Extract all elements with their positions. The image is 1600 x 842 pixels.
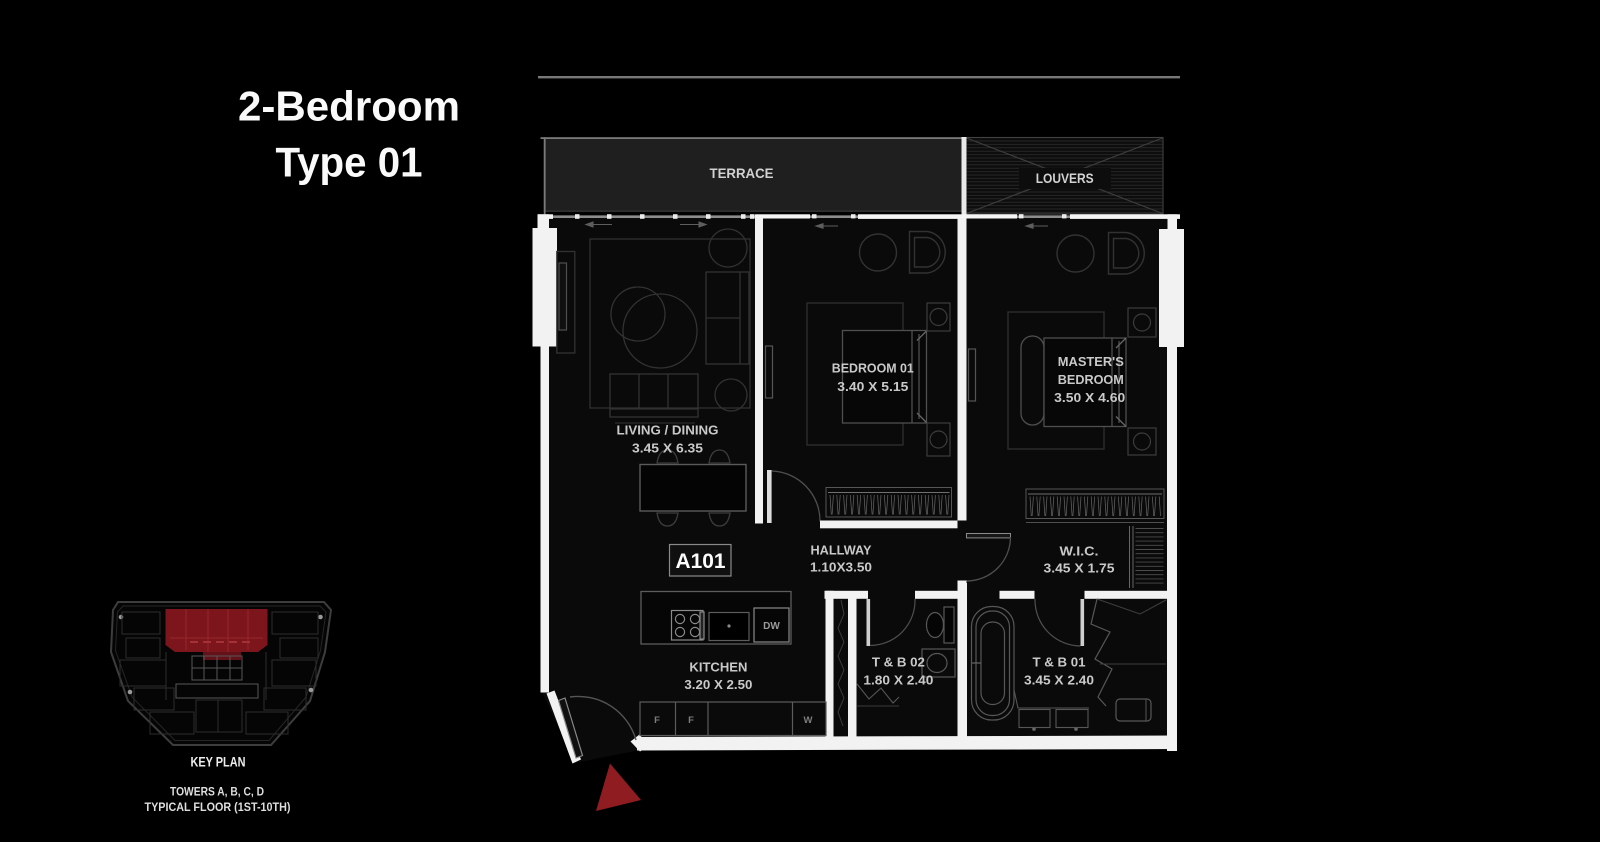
svg-text:BEDROOM 01: BEDROOM 01 [832,361,914,376]
svg-text:1.10X3.50: 1.10X3.50 [810,560,872,575]
svg-text:3.45 X 1.75: 3.45 X 1.75 [1044,561,1115,576]
svg-text:3.40 X 5.15: 3.40 X 5.15 [837,379,908,394]
svg-text:W.I.C.: W.I.C. [1060,544,1099,559]
svg-text:2-Bedroom: 2-Bedroom [238,83,460,130]
svg-text:F: F [654,715,660,726]
svg-text:TOWERS A, B, C, D: TOWERS A, B, C, D [170,785,264,799]
svg-text:TERRACE: TERRACE [710,165,774,181]
svg-text:T & B 01: T & B 01 [1033,655,1086,670]
svg-text:3.50 X 4.60: 3.50 X 4.60 [1054,390,1125,405]
svg-text:3.45 X 6.35: 3.45 X 6.35 [632,441,703,456]
svg-text:HALLWAY: HALLWAY [811,543,872,558]
svg-text:KEY PLAN: KEY PLAN [191,755,246,770]
svg-text:DW: DW [763,621,780,632]
svg-text:LOUVERS: LOUVERS [1036,170,1094,186]
svg-text:MASTER'S: MASTER'S [1058,354,1124,369]
svg-text:KITCHEN: KITCHEN [689,660,747,675]
svg-text:T & B 02: T & B 02 [872,655,925,670]
svg-text:1.80 X 2.40: 1.80 X 2.40 [863,673,933,688]
svg-text:3.45 X 2.40: 3.45 X 2.40 [1024,673,1094,688]
svg-text:W: W [804,715,813,726]
svg-text:LIVING / DINING: LIVING / DINING [617,423,719,438]
svg-text:Type 01: Type 01 [276,139,423,186]
svg-text:BEDROOM: BEDROOM [1058,372,1124,387]
svg-text:F: F [688,715,694,726]
svg-text:3.20 X 2.50: 3.20 X 2.50 [684,677,752,692]
svg-text:A101: A101 [676,550,726,573]
svg-text:TYPICAL FLOOR (1ST-10TH): TYPICAL FLOOR (1ST-10TH) [145,800,291,814]
